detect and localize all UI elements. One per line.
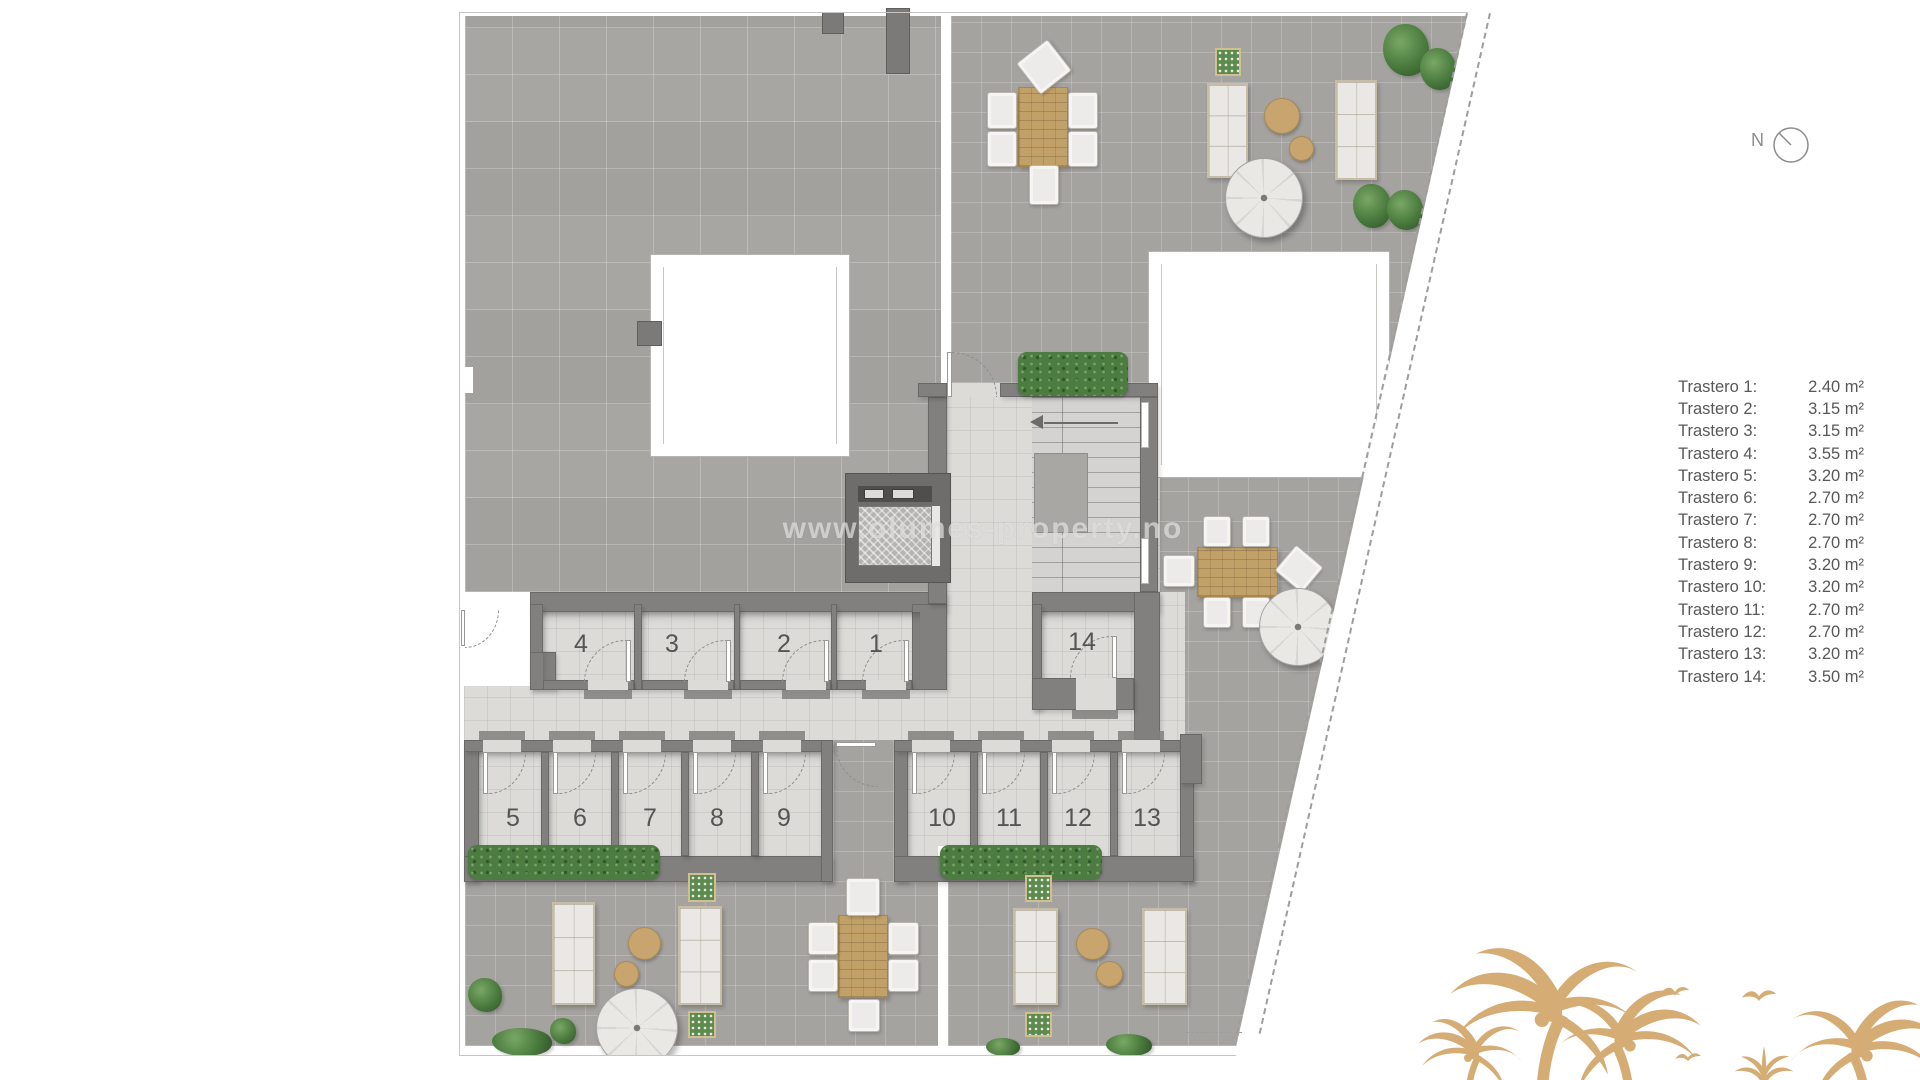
storage-room-number-13: 13 [1127,801,1167,835]
storage-room-number-2: 2 [764,627,804,661]
wall [1180,734,1202,784]
legend-row: Trastero 2:3.15 m² [1678,398,1864,420]
chair [1029,165,1059,205]
door-sill [1072,710,1118,719]
plan-outline [459,1055,1236,1056]
chair [1068,131,1098,167]
door-leaf [1112,636,1117,678]
storage-room-number-7: 7 [630,801,670,835]
legend-row: Trastero 3:3.15 m² [1678,421,1864,443]
door-sill [908,731,954,740]
parasol [1259,588,1337,666]
hedge [468,845,660,879]
door-leaf [483,752,488,794]
legend-room-label: Trastero 8: [1678,534,1757,553]
legend-row: Trastero 7:2.70 m² [1678,510,1864,532]
lounger [1142,908,1187,1005]
bush [1106,1034,1152,1056]
stair-direction-line [1044,422,1118,424]
void-opening [1148,251,1390,478]
storage-room-number-11: 11 [989,801,1029,835]
legend-room-label: Trastero 5: [1678,467,1757,486]
door-leaf [824,640,829,682]
bush [550,1018,576,1044]
wall [611,752,619,856]
door-leaf [626,640,631,682]
planter-box [688,873,716,902]
legend-room-label: Trastero 1: [1678,378,1757,397]
dining-table [838,915,888,998]
legend-room-area: 3.15 m² [1808,422,1864,441]
door-sill [1048,731,1094,740]
door-leaf [726,640,731,682]
legend-room-area: 2.70 m² [1808,601,1864,620]
door-sill [862,690,910,699]
wall-opening [553,740,591,752]
legend-room-area: 3.55 m² [1808,445,1864,464]
door-leaf [553,752,558,794]
legend-room-area: 3.50 m² [1808,668,1864,687]
wall-opening [483,740,521,752]
chair [1242,516,1270,547]
legend-room-label: Trastero 9: [1678,556,1757,575]
stair-divider-line [1062,397,1063,453]
door-leaf [912,752,917,794]
legend-row: Trastero 4:3.55 m² [1678,443,1864,465]
chair [1203,597,1231,628]
bush [492,1028,552,1056]
door-sill [619,731,665,740]
wall [821,740,833,882]
wall-opening [693,740,731,752]
legend-room-area: 3.20 m² [1808,556,1864,575]
legend-room-label: Trastero 2: [1678,400,1757,419]
legend-row: Trastero 8:2.70 m² [1678,532,1864,554]
door-sill [584,690,632,699]
chair [846,878,880,916]
wall [634,604,642,690]
legend-room-area: 3.15 m² [1808,400,1864,419]
door-sill [549,731,595,740]
door-leaf [693,752,698,794]
planter-box [1025,1012,1052,1037]
chair [1203,516,1231,547]
hedge [1018,352,1128,396]
bush [1353,184,1391,228]
plan-outline [459,12,460,1056]
storage-room-number-3: 3 [652,627,692,661]
chair [987,131,1017,167]
plot-boundary-step [1186,1032,1242,1033]
wall [681,752,689,856]
bush [468,978,502,1012]
door-leaf [763,752,768,794]
legend-row: Trastero 6:2.70 m² [1678,487,1864,509]
palm-tree-graphic [1408,1008,1528,1080]
north-indicator: N [1745,112,1817,174]
wall [1134,592,1160,740]
lounger [1335,80,1377,180]
stair-window [1141,402,1149,448]
door-leaf [1122,752,1127,794]
legend-row: Trastero 10:3.20 m² [1678,577,1864,599]
chair [1068,92,1098,129]
floor-plan-page: 4321145678910111213 www.olumes-property.… [0,0,1920,1080]
dining-table [1018,87,1068,167]
legend-room-label: Trastero 4: [1678,445,1757,464]
legend-room-area: 2.70 m² [1808,511,1864,530]
legend-room-area: 2.70 m² [1808,534,1864,553]
legend-room-label: Trastero 14: [1678,668,1766,687]
wall-opening [1076,678,1116,710]
storage-room-number-12: 12 [1058,801,1098,835]
wall [1040,752,1048,856]
wall-opening [912,740,950,752]
plan-outline [459,12,1468,13]
legend-row: Trastero 11:2.70 m² [1678,599,1864,621]
storage-room-number-6: 6 [560,801,600,835]
plant-graphic [1722,1042,1806,1080]
wall [541,752,549,856]
chair [987,92,1017,129]
elevator-machine-slot [892,489,914,499]
bird-graphic [1674,1050,1702,1062]
bush [986,1038,1020,1056]
planter-box [1215,48,1241,76]
storage-room-number-1: 1 [856,627,896,661]
pouf [1264,98,1300,134]
legend-row: Trastero 1:2.40 m² [1678,376,1864,398]
door-leaf [623,752,628,794]
wall-opening [1052,740,1090,752]
storage-room-number-4: 4 [561,627,601,661]
door-leaf [904,640,909,682]
hedge [940,845,1102,879]
lounger [552,902,595,1005]
legend-room-label: Trastero 10: [1678,578,1766,597]
door-leaf [1052,752,1057,794]
chair [808,922,838,955]
legend-room-area: 3.20 m² [1808,578,1864,597]
legend-room-label: Trastero 12: [1678,623,1766,642]
door-leaf [947,352,952,397]
storage-room-number-10: 10 [922,801,962,835]
parasol [596,988,678,1068]
wall [970,752,978,856]
parasol [1225,158,1303,238]
door-sill [689,731,735,740]
pouf [614,961,639,987]
legend-room-label: Trastero 3: [1678,422,1757,441]
door-leaf [982,752,987,794]
roof-vent [886,8,910,74]
stair-direction-arrowhead [1030,415,1043,429]
north-label: N [1751,130,1764,150]
legend-room-area: 3.20 m² [1808,467,1864,486]
door-sill [759,731,805,740]
lounger [1013,908,1058,1005]
door-sill [1118,731,1164,740]
wall-opening [763,740,801,752]
roof-vent [637,321,662,346]
door-sill [782,690,830,699]
legend-room-area: 2.40 m² [1808,378,1864,397]
legend-room-label: Trastero 11: [1678,601,1765,620]
chair [848,999,880,1032]
chair [1163,555,1195,587]
wall-opening [623,740,661,752]
storage-room-number-9: 9 [764,801,804,835]
wall [751,752,759,856]
dining-table [1197,547,1278,597]
pouf [1289,136,1314,161]
planter-box [688,1011,716,1038]
storage-room-number-14: 14 [1062,625,1102,659]
storage-room-number-8: 8 [697,801,737,835]
legend-room-label: Trastero 13: [1678,645,1766,664]
legend-row: Trastero 5:3.20 m² [1678,465,1864,487]
legend-room-label: Trastero 6: [1678,489,1757,508]
void-opening [650,254,850,457]
legend-room-area: 2.70 m² [1808,489,1864,508]
legend-row: Trastero 13:3.20 m² [1678,644,1864,666]
wall-opening [982,740,1020,752]
door-sill [684,690,732,699]
bird-graphic [1660,983,1690,997]
door-leaf [461,610,465,646]
white-divider [941,16,951,383]
wall [918,383,947,397]
legend-room-area: 3.20 m² [1808,645,1864,664]
door-sill [479,731,525,740]
wall-opening [1122,740,1160,752]
storage-area-legend: Trastero 1:2.40 m²Trastero 2:3.15 m²Tras… [1678,376,1864,688]
legend-row: Trastero 9:3.20 m² [1678,554,1864,576]
chair [888,959,919,992]
chair [808,959,838,992]
white-divider [459,367,473,393]
pouf [628,927,661,960]
watermark: www.olumes-property.no [778,512,1188,546]
pouf [1076,928,1109,960]
legend-room-label: Trastero 7: [1678,511,1757,530]
elevator-machine-slot [864,489,884,499]
roof-vent [822,12,844,34]
legend-room-area: 2.70 m² [1808,623,1864,642]
legend-row: Trastero 14:3.50 m² [1678,666,1864,688]
door-sill [978,731,1024,740]
pouf [1096,961,1123,987]
bird-graphic [1740,986,1778,1002]
legend-row: Trastero 12:2.70 m² [1678,621,1864,643]
storage-room-number-5: 5 [493,801,533,835]
wall [1110,752,1118,856]
planter-box [1025,875,1052,902]
chair [888,922,919,955]
lounger [678,906,722,1005]
door-leaf [836,742,876,747]
